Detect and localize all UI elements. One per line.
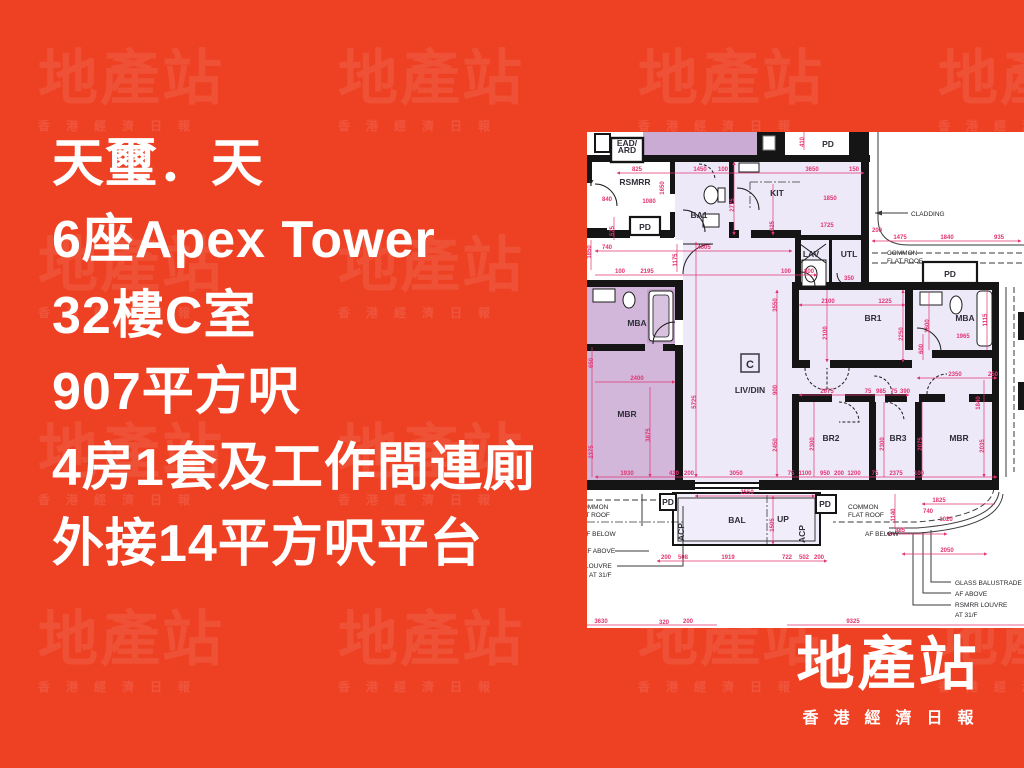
- watermark-tile: 地產站香港經濟日報: [938, 48, 1024, 134]
- dimension-value: 1475: [893, 235, 907, 241]
- dimension-value: 502: [799, 555, 810, 561]
- dimension-value: 740: [602, 245, 613, 251]
- property-card: { "colors": { "background": "#EE4124", "…: [0, 0, 1024, 768]
- dimension-value: 75: [865, 389, 872, 395]
- watermark-title: 地產站: [38, 609, 338, 671]
- dimension-value: 9325: [846, 619, 860, 625]
- dimension-value: 410: [800, 136, 806, 147]
- floorplan-svg: 8251450100365015084010801850172574046051…: [587, 132, 1024, 628]
- dimension-value: 4605: [697, 245, 711, 251]
- dimension-value: 2250: [899, 327, 905, 341]
- dimension-value: 508: [678, 555, 689, 561]
- brand-logo: 地產站 香港經濟日報: [768, 634, 1008, 728]
- room-label: LIV/DIN: [735, 385, 765, 395]
- room-label: ACP: [797, 525, 807, 543]
- dimension-value: 2350: [948, 372, 962, 378]
- watermark-tile: 地產站香港經濟日報: [38, 609, 338, 695]
- dimension-value: 350: [844, 276, 855, 282]
- room-label: ACP: [676, 523, 686, 541]
- dimension-value: 1020: [939, 517, 953, 523]
- plan-annotation: AF BELOW: [587, 531, 616, 538]
- dimension-value: 2375: [589, 445, 595, 459]
- dimension-value: 2075: [918, 437, 924, 451]
- room-label: BAL: [728, 515, 745, 525]
- brand-logo-subtitle: 香港經濟日報: [768, 704, 1023, 728]
- watermark-title: 地產站: [638, 48, 938, 110]
- dimension-value: 3550: [773, 298, 779, 312]
- dimension-value: 1919: [721, 555, 735, 561]
- dimension-value: 840: [602, 197, 613, 203]
- dimension-value: 1140: [891, 508, 897, 522]
- dimension-value: 2100: [823, 326, 829, 340]
- dimension-value: 1450: [693, 167, 707, 173]
- watermark-tile: 地產站香港經濟日報: [38, 48, 338, 134]
- dimension-value: 2035: [980, 439, 986, 453]
- room-label: PD: [819, 499, 831, 509]
- dimension-value: 2300: [810, 437, 816, 451]
- dimension-value: 75: [872, 471, 879, 477]
- dimension-value: 2450: [773, 438, 779, 452]
- plan-annotation: COMMON: [887, 250, 918, 257]
- dimension-value: 1600: [925, 319, 931, 333]
- room-label: PD: [662, 497, 674, 507]
- dimension-value: 100: [914, 471, 925, 477]
- dimension-value: 1965: [956, 334, 970, 340]
- plan-annotation: AF BELOW: [865, 531, 899, 538]
- plan-annotation: FLAT ROOF: [587, 512, 610, 519]
- headline: 天璽．天 6座Apex Tower 32樓C室 907平方呎 4房1套及工作間連…: [52, 126, 536, 582]
- dimension-value: 1650: [660, 181, 666, 195]
- dimension-value: 200: [814, 555, 825, 561]
- room-label: LAV: [803, 249, 820, 259]
- dimension-value: 1825: [932, 498, 946, 504]
- room-label: BR1: [864, 313, 881, 323]
- dimension-value: 2775: [730, 198, 736, 212]
- dimension-value: 650: [589, 357, 595, 368]
- plan-annotation: FLAT ROOF: [887, 258, 923, 265]
- dimension-value: 1200: [847, 471, 861, 477]
- dimension-value: 5725: [692, 395, 698, 409]
- dimension-value: 1080: [642, 199, 656, 205]
- dimension-value: 200: [872, 228, 883, 234]
- room-label: BA1: [690, 210, 707, 220]
- room-label: PD: [639, 222, 651, 232]
- dimension-value: 75: [891, 389, 898, 395]
- room-label: BR2: [822, 433, 839, 443]
- dimension-value: 2075: [820, 389, 834, 395]
- dimension-value: 320: [659, 620, 670, 626]
- dimension-value: 1840: [976, 396, 982, 410]
- plan-annotation: COMMON: [848, 504, 879, 511]
- dimension-value: 2375: [889, 471, 903, 477]
- dimension-value: 200: [683, 619, 694, 625]
- plan-annotation: AF ABOVE: [587, 548, 616, 555]
- room-label: RSMRR: [619, 177, 650, 187]
- dimension-value: 390: [900, 389, 911, 395]
- watermark-title: 地產站: [38, 48, 338, 110]
- room-label: PD: [822, 139, 834, 149]
- headline-line-area: 907平方呎: [52, 354, 536, 430]
- room-label: ARD: [618, 145, 636, 155]
- plan-annotation: COMMON: [587, 504, 609, 511]
- dimension-value: 250: [988, 372, 999, 378]
- plan-annotation: AF ABOVE: [955, 591, 988, 598]
- dimension-value: 740: [923, 509, 934, 515]
- watermark-tile: 地產站香港經濟日報: [638, 48, 938, 134]
- room-label: UTL: [841, 249, 858, 259]
- headline-line-floor-unit: 32樓C室: [52, 278, 536, 354]
- brand-logo-title: 地產站: [768, 634, 1008, 696]
- headline-line-layout: 4房1套及工作間連廁: [52, 430, 536, 506]
- dimension-value: 900: [773, 384, 779, 395]
- dimension-value: 1840: [940, 235, 954, 241]
- dimension-value: 3875: [646, 428, 652, 442]
- unit-label: C: [746, 359, 754, 371]
- dimension-value: 420: [669, 471, 680, 477]
- dimension-value: 575: [610, 225, 616, 236]
- room-label: KIT: [770, 188, 785, 198]
- dimension-value: 1930: [620, 471, 634, 477]
- dimension-value: 100: [615, 269, 626, 275]
- dimension-value: 100: [718, 167, 729, 173]
- dimension-value: 950: [820, 471, 831, 477]
- room-label: MBA: [955, 313, 974, 323]
- dimension-value: 1225: [878, 299, 892, 305]
- room-label: MBR: [949, 433, 968, 443]
- plan-annotation: AT 31/F: [589, 572, 612, 579]
- dimension-value: 2050: [940, 548, 954, 554]
- room-label: Y: [588, 178, 594, 188]
- watermark-tile: 地產站香港經濟日報: [338, 48, 638, 134]
- dimension-value: 2550: [740, 490, 754, 496]
- dimension-value: 1175: [673, 253, 679, 267]
- dimension-value: 2300: [880, 437, 886, 451]
- dimension-value: 2195: [640, 269, 654, 275]
- dimension-value: 1850: [587, 245, 593, 259]
- dimension-value: 1115: [983, 313, 989, 326]
- dimension-value: 1505: [770, 518, 776, 532]
- dimension-value: 3050: [729, 471, 743, 477]
- dimension-value: 3650: [805, 167, 819, 173]
- watermark-title: 地產站: [338, 48, 638, 110]
- dimension-value: 625: [770, 220, 776, 231]
- plan-annotation: LOUVRE: [587, 563, 612, 570]
- plan-annotation: CLADDING: [911, 211, 945, 218]
- floorplan-image: 8251450100365015084010801850172574046051…: [587, 132, 1024, 628]
- plan-annotation: RSMRR LOUVRE: [955, 602, 1008, 609]
- room-label: PD: [944, 269, 956, 279]
- plan-annotation: FLAT ROOF: [848, 512, 884, 519]
- dimension-value: 100: [781, 269, 792, 275]
- dimension-value: 825: [632, 167, 643, 173]
- dimension-value: 985: [876, 389, 887, 395]
- headline-line-estate: 天璽．天: [52, 126, 536, 202]
- plan-annotation: AT 31/F: [955, 612, 978, 619]
- dimension-value: 600: [919, 343, 925, 354]
- dimension-value: 200: [684, 471, 695, 477]
- watermark-title: 地產站: [938, 48, 1024, 110]
- watermark-subtitle: 香港經濟日報: [338, 678, 638, 695]
- dimension-value: 200: [661, 555, 672, 561]
- watermark-subtitle: 香港經濟日報: [38, 678, 338, 695]
- dimension-value: 935: [994, 235, 1005, 241]
- dimension-value: 3630: [594, 619, 608, 625]
- dimension-value: 722: [782, 555, 793, 561]
- dimension-value: 150: [849, 167, 860, 173]
- dimension-value: 2400: [630, 376, 644, 382]
- dimension-value: 1725: [820, 223, 834, 229]
- dimension-value: 75: [788, 471, 795, 477]
- headline-line-terrace: 外接14平方呎平台: [52, 506, 536, 582]
- room-label: MBA: [627, 318, 646, 328]
- dimension-value: 800: [804, 269, 815, 275]
- room-label: UP: [777, 514, 789, 524]
- dimension-value: 200: [834, 471, 845, 477]
- plan-annotation: GLASS BALUSTRADE: [955, 580, 1022, 587]
- dimension-value: 1100: [798, 471, 812, 477]
- dimension-value: 2100: [821, 299, 835, 305]
- dimension-value: 1850: [823, 196, 837, 202]
- room-label: BR3: [889, 433, 906, 443]
- room-label: MBR: [617, 409, 636, 419]
- headline-line-tower: 6座Apex Tower: [52, 202, 536, 278]
